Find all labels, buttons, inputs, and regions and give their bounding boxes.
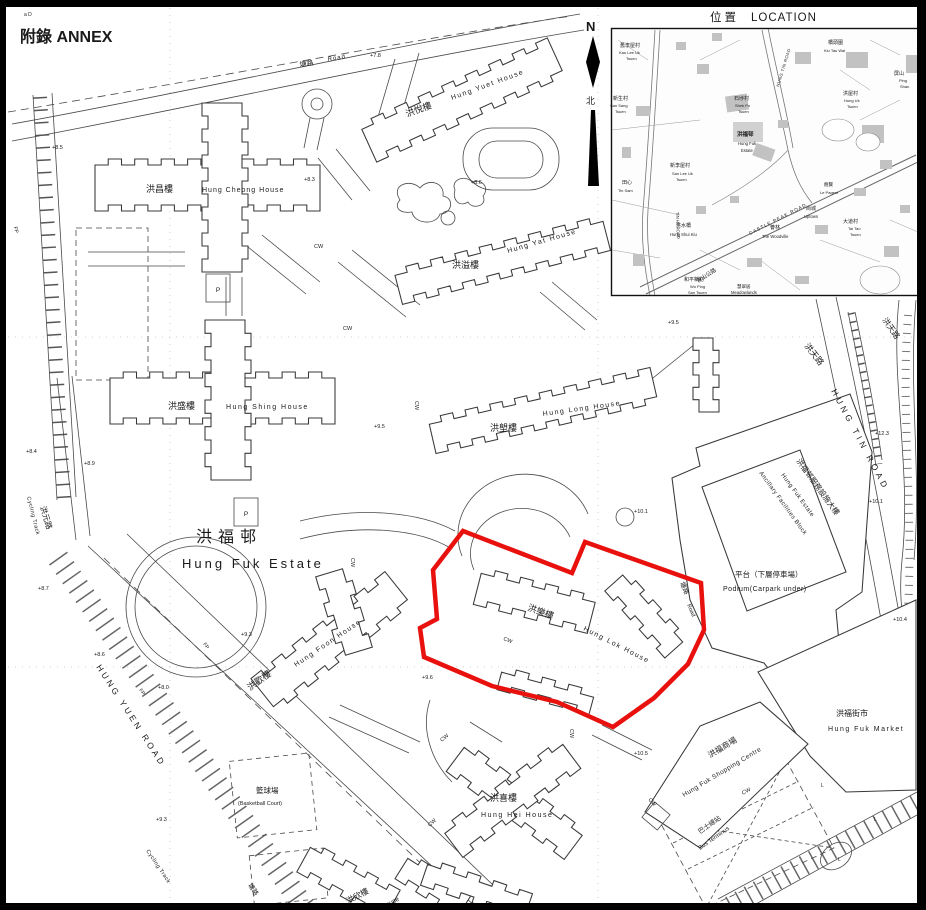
estate-name-zh: 洪福邨 [196, 528, 262, 546]
cycle-track-hatch [40, 97, 64, 498]
inset-tin-sam-en: Tin Sam [618, 188, 633, 193]
inset-kau-lee-uk-tsuen-en: Tsuen [626, 56, 637, 61]
inset-hung-fuk-estate-en: Estate [741, 148, 754, 153]
basketball-court-en: (Basketball Court) [238, 801, 282, 807]
inset-wo-ping-san-tsuen-en: San Tsuen [688, 290, 707, 295]
spot-height: +8.5 [52, 145, 63, 151]
lamp-label: L [838, 857, 841, 863]
residential-block-outline [362, 38, 562, 162]
market-en: Hung Fuk Market [828, 726, 904, 733]
inset-meadowlands-zh: 慧翠居 [737, 283, 751, 290]
bldg-hung-cheong-house-en: Hung Cheong House [202, 187, 284, 194]
annex-site-plan: 塘路Road洪悅樓Hung Yuet House洪昌樓Hung Cheong H… [0, 0, 926, 910]
spot-height: +9.5 [668, 320, 679, 326]
road-tong-lo-en: Road [327, 54, 346, 63]
podium-zh: 平台（下層停車場） [735, 569, 803, 579]
inset-hung-uk-tsuen-en: Tsuen [847, 104, 858, 109]
north-zh-label: 北 [586, 96, 595, 106]
lamp-label: L [874, 817, 877, 823]
inset-title-zh: 位置 [710, 10, 739, 24]
inset-tin-ha-road: TIN HA ROAD [675, 212, 681, 239]
estate-name-en: Hung Fuk Estate [182, 556, 324, 571]
inset-kau-lee-uk-tsuen-en: Kau Lee Uk [619, 50, 640, 55]
inset-shek-po-tsuen-en: Tsuen [738, 109, 749, 114]
inset-uptown-zh: 尚城 [806, 205, 816, 212]
spot-height: +10.5 [634, 751, 648, 757]
inset-shek-po-tsuen-en: Shek Po [735, 103, 751, 108]
inset-ping-shan-en: Ping [899, 78, 907, 83]
spot-height: +8.6 [94, 652, 105, 658]
inset-hung-fuk-estate-zh: 洪福邨 [737, 130, 754, 138]
residential-block-outline [693, 338, 719, 412]
map-canvas: 塘路Road洪悅樓Hung Yuet House洪昌樓Hung Cheong H… [0, 0, 926, 910]
spot-height: +8.6 [471, 180, 482, 186]
residential-block-outline [395, 219, 611, 305]
planter-blob [397, 182, 450, 222]
inset-tai-tao-tsuen-zh: 大道村 [843, 218, 858, 225]
inset-kau-lee-uk-tsuen-zh: 舊李屋村 [620, 42, 640, 49]
bldg-hung-shing-house-zh: 洪盛樓 [168, 400, 195, 411]
cw-label: CW [439, 733, 450, 744]
fp-label: FP [137, 688, 146, 697]
inset-san-lee-uk-tsuen-en: San Lee Uk [672, 171, 693, 176]
page-title: 附錄 ANNEX [20, 27, 113, 46]
podium-en: Podium(Carpark under) [723, 586, 807, 593]
road-tong-lo-zh: 塘路 [246, 881, 261, 897]
inset-san-sang-tsuen-en: San Sang [610, 103, 628, 108]
fp-label: FP [201, 642, 210, 651]
slope-hatch-band [58, 558, 305, 908]
spot-height: +10.1 [869, 499, 883, 505]
road-tong-lo-zh: 塘路 [299, 58, 314, 69]
parking-label: P [216, 287, 220, 294]
inset-ping-shan-zh: 屏山 [894, 70, 904, 77]
inset-wo-ping-san-tsuen-en: Wo Ping [690, 284, 705, 289]
road-hung-yuen-road: HUNG YUEN ROAD [94, 663, 168, 769]
bldg-hung-lok-house-en: Hung Lok House [582, 626, 650, 665]
inset-title-en: LOCATION [751, 12, 817, 24]
inset-meadowlands-en: Meadowlands [731, 290, 757, 295]
inset-uptown-en: Uptown [804, 214, 819, 219]
inset-location-map: 位置 LOCATION [610, 10, 919, 296]
inset-tai-tao-tsuen-en: Tsuen [850, 232, 861, 237]
inset-tin-sam-zh: 田心 [622, 179, 632, 186]
bldg-hung-hei-house-zh: 洪喜樓 [490, 792, 517, 803]
lamp-label: L [821, 783, 824, 789]
cw-label: CW [314, 244, 324, 250]
bldg-hung-shing-house-en: Hung Shing House [226, 404, 309, 411]
spot-height: +10.4 [893, 617, 907, 623]
spot-height: +9.5 [374, 424, 385, 430]
basketball-court-zh: 籃球場 [256, 785, 279, 795]
inset-kiu-tau-wai-en: Kiu Tau Wai [824, 48, 845, 53]
inset-hung-uk-tsuen-zh: 洪屋村 [843, 90, 858, 97]
spot-height: +10.1 [634, 509, 648, 515]
slope-hatch-bottom-right [730, 803, 917, 906]
bldg-hung-cheong-house-zh: 洪昌樓 [146, 183, 173, 194]
lookout-circle [302, 89, 332, 119]
inset-san-sang-tsuen-en: Tsuen [615, 109, 626, 114]
cw-label: CW [568, 729, 574, 739]
cw-label: CW [413, 401, 419, 411]
spot-height: +8.3 [304, 177, 315, 183]
basketball-court-outline [229, 753, 328, 907]
north-arrow: N 北 [586, 19, 600, 186]
inset-hung-uk-tsuen-en: Hung Uk [844, 98, 860, 103]
spot-height: +8.4 [26, 449, 37, 455]
spot-height: +8.9 [84, 461, 95, 467]
parking-label: P [244, 511, 248, 518]
spot-height: +8.0 [158, 685, 169, 691]
dashed-lot [76, 228, 148, 380]
inset-development-en: Le Pagent [820, 190, 839, 195]
spot-height: +9.3 [156, 817, 167, 823]
cw-label: CW [343, 326, 353, 332]
bldg-hung-hei-house-en: Hung Hei House [481, 812, 553, 819]
cycling-track-label: Cycling Track [25, 496, 40, 536]
spot-height: +7.8 [370, 53, 381, 59]
slope-hatch-right [906, 315, 910, 640]
inset-ping-shan-en: Shan [900, 84, 909, 89]
spot-height: +9.6 [422, 675, 433, 681]
inset-woodville-en: The Woodville [762, 234, 789, 239]
cycling-track-label: Cycling Track [144, 849, 171, 885]
market-zh: 洪福街市 [836, 708, 868, 718]
inset-san-lee-uk-tsuen-en: Tsuen [676, 177, 687, 182]
cw-label: CW [427, 817, 438, 828]
inset-development-zh: 翹賢 [824, 181, 833, 188]
residential-block-outline [205, 320, 251, 480]
north-n-label: N [586, 19, 595, 34]
corner-note: a D [24, 12, 32, 18]
bldg-hung-yat-house-zh: 洪溢樓 [452, 259, 479, 270]
inset-san-sang-tsuen-zh: 新生村 [613, 95, 628, 102]
bldg-hung-long-house-zh: 洪塱樓 [490, 422, 517, 433]
inset-shek-po-tsuen-zh: 石埗村 [734, 95, 749, 102]
fp-label: FP [12, 226, 19, 234]
spot-height: +9.3 [241, 632, 252, 638]
cw-label: CW [349, 558, 355, 568]
residential-block-outline [473, 571, 595, 634]
inset-hung-fuk-estate-en: Hung Fuk [738, 141, 757, 146]
spot-height: +8.7 [38, 586, 49, 592]
inset-kiu-tau-wai-zh: 橋頭圍 [828, 39, 843, 46]
inset-tai-tao-tsuen-en: Tai Tao [848, 226, 861, 231]
north-arrow-needle [588, 110, 599, 186]
cw-label: CW [502, 636, 513, 645]
spot-height: +12.3 [875, 431, 889, 437]
road-hung-tin-lo-zh: 洪天路 [802, 341, 826, 368]
inset-hung-shui-kiu-en: Hung Shui Kiu [670, 232, 697, 237]
inset-san-lee-uk-tsuen-zh: 新李屋村 [670, 162, 690, 169]
road-hung-yuen-lo-zh: 洪元路 [38, 505, 55, 531]
